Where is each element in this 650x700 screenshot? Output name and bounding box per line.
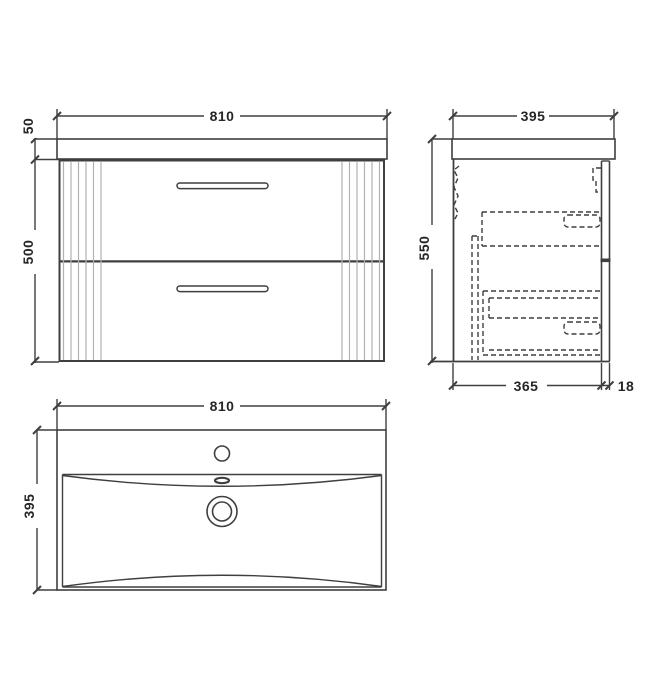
drawing-sheet: 810 50 500: [0, 0, 650, 700]
front-bracket-dashed: [593, 168, 601, 192]
wall-bracket-dashed: [454, 166, 459, 219]
side-view: 395 550: [416, 108, 634, 394]
plan-depth-dimension: 395: [21, 426, 57, 594]
front-worktop-height-label: 50: [20, 118, 36, 135]
side-drawer-front-panel: [601, 161, 611, 361]
front-top-drawer-handle: [177, 183, 268, 189]
front-width-dimension: 810: [53, 108, 391, 139]
overflow-slot: [215, 478, 229, 483]
side-drawer-gap: [601, 259, 611, 263]
technical-drawing-vanity-unit: 810 50 500: [0, 0, 650, 700]
side-front-thickness-label: 18: [618, 378, 635, 394]
plan-view: 810 395: [21, 398, 390, 594]
drain-waste: [207, 497, 237, 527]
plan-width-dimension: 810: [53, 398, 390, 430]
waste-pipe-dashed: [472, 236, 478, 360]
front-view: 810 50 500: [20, 108, 391, 365]
side-hidden-details: [454, 166, 601, 360]
side-carcass-depth-label: 365: [514, 378, 539, 394]
top-drawer-box-dashed: [482, 212, 600, 246]
side-depth-label: 395: [521, 108, 546, 124]
front-width-label: 810: [210, 108, 235, 124]
tap-hole: [215, 446, 230, 461]
plan-depth-label: 395: [21, 494, 37, 519]
front-cabinet-height-label: 500: [20, 240, 36, 265]
bowl-front-slope-curve: [63, 575, 382, 586]
front-height-dimension: 50 500: [20, 114, 59, 365]
side-depth-dimension: 395: [449, 108, 618, 139]
plan-width-label: 810: [210, 398, 235, 414]
basin-bowl: [63, 475, 382, 588]
side-worktop: [452, 139, 615, 159]
front-worktop: [57, 139, 387, 159]
bottom-drawer-handle-dashed: [564, 322, 600, 334]
top-drawer-handle-dashed: [564, 215, 600, 227]
front-bottom-drawer-handle: [177, 286, 268, 292]
bottom-drawer-box-dashed: [483, 291, 600, 355]
side-height-label: 550: [416, 236, 432, 261]
side-height-dimension: 550: [416, 135, 452, 365]
side-bottom-dimensions: 365 18: [449, 363, 634, 394]
basin-outer-rim: [57, 430, 386, 590]
